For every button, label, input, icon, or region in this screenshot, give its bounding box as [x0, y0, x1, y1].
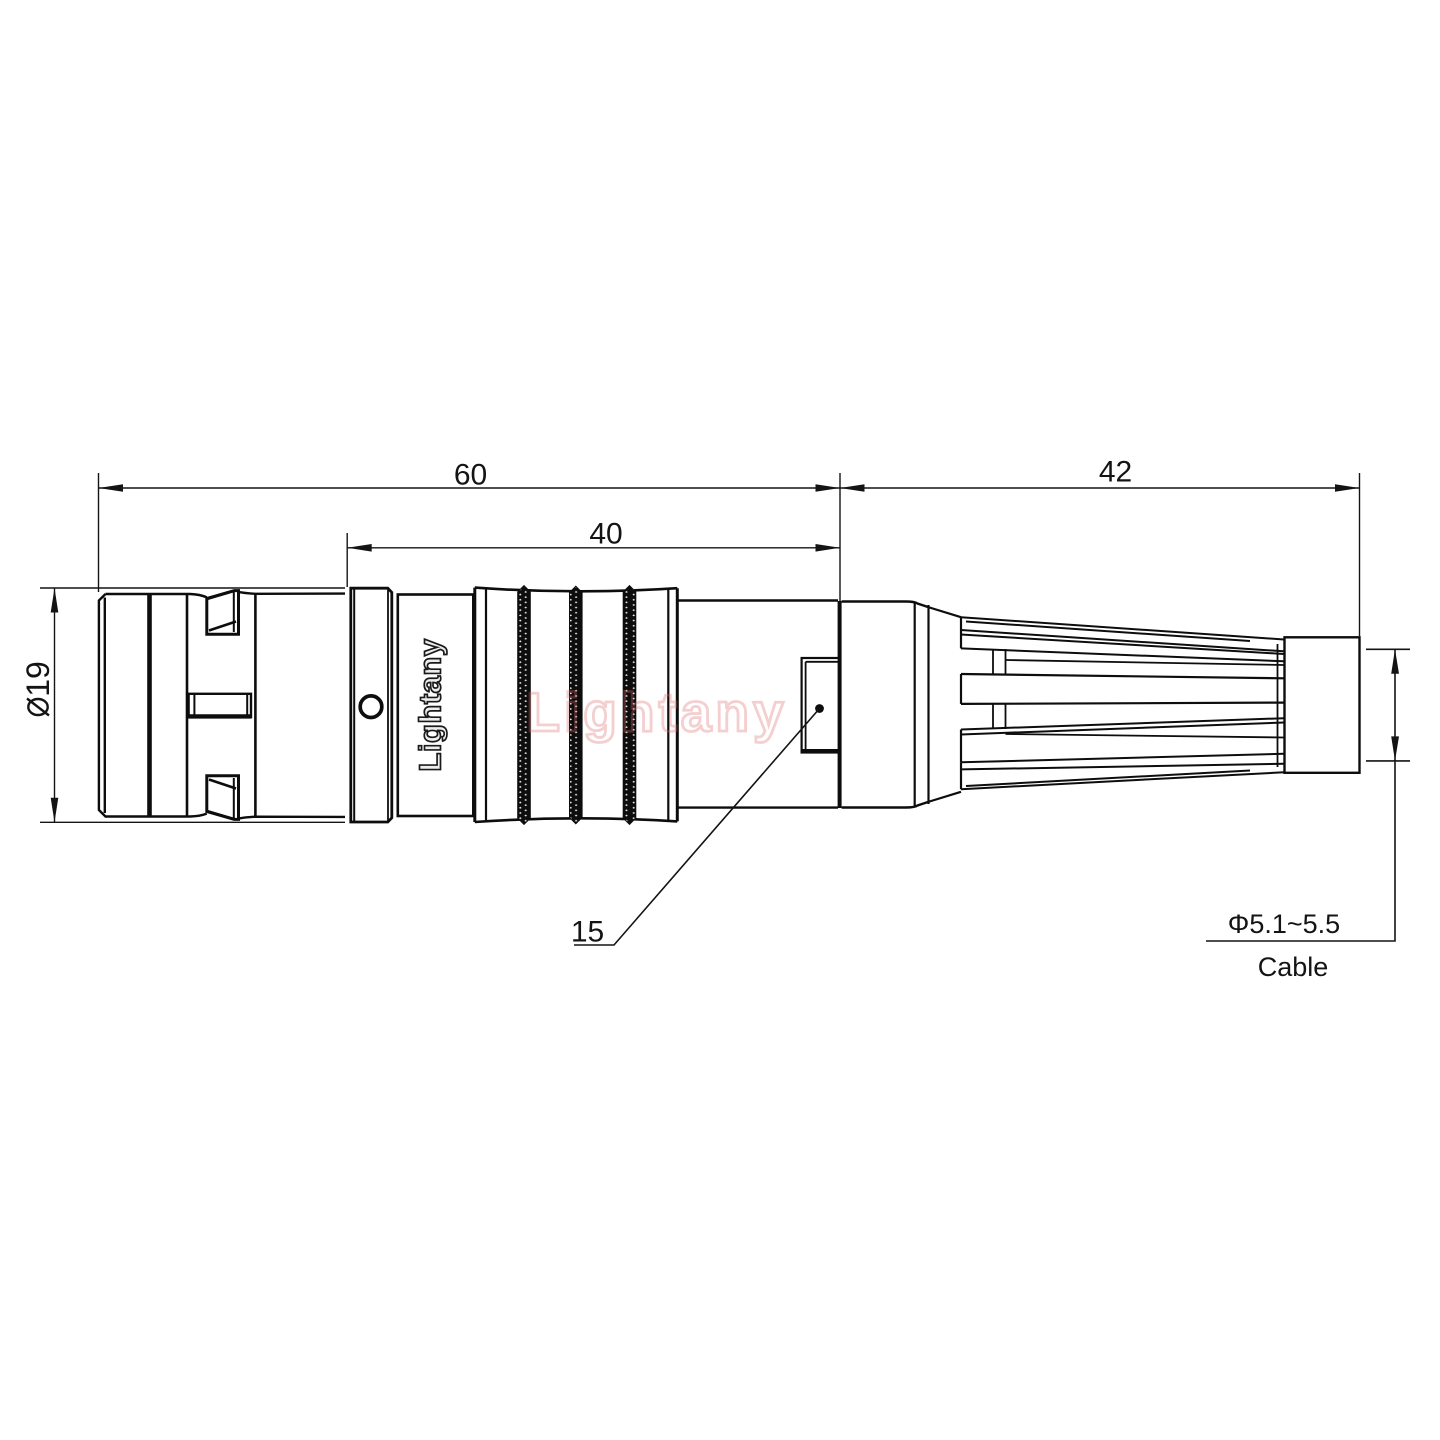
svg-text:15: 15	[571, 916, 604, 949]
svg-text:60: 60	[454, 459, 487, 492]
svg-text:Cable: Cable	[1258, 952, 1329, 982]
svg-text:Φ5.1~5.5: Φ5.1~5.5	[1228, 909, 1340, 939]
svg-text:Lightany: Lightany	[526, 681, 787, 743]
svg-text:40: 40	[589, 518, 622, 551]
svg-text:42: 42	[1099, 456, 1132, 489]
svg-text:Lightany: Lightany	[413, 638, 448, 771]
svg-text:19: 19	[20, 661, 56, 697]
